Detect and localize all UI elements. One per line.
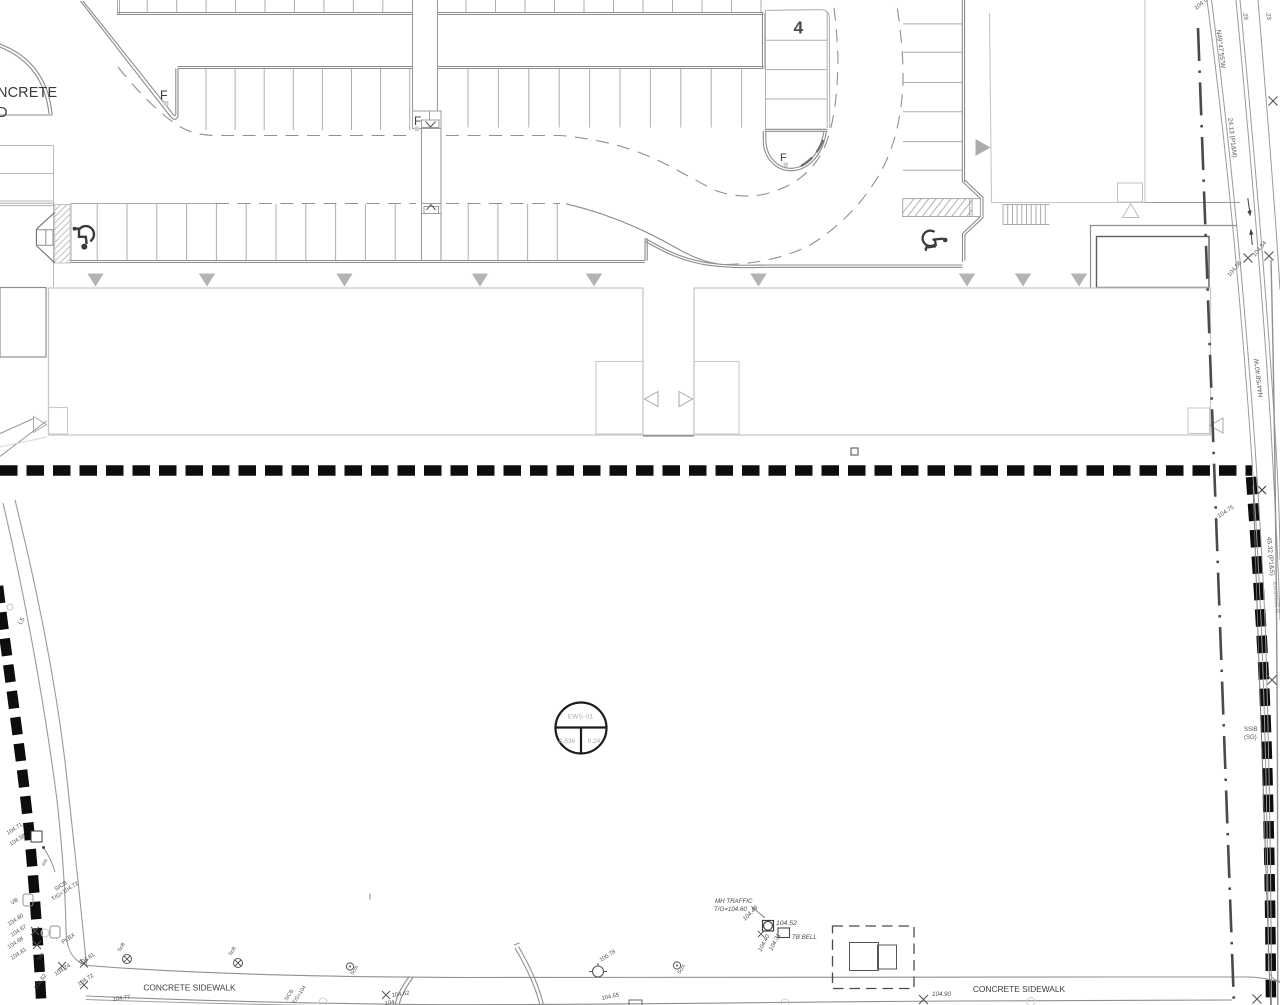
svg-text:NCRETE: NCRETE <box>0 85 57 101</box>
svg-text:L5: L5 <box>17 616 27 626</box>
svg-text:F: F <box>780 152 787 164</box>
svg-text:F: F <box>160 89 168 103</box>
svg-text:T/G=104: T/G=104 <box>292 985 308 1005</box>
svg-text:SM: SM <box>37 952 46 962</box>
svg-text:CONCRETE SIDEWALK: CONCRETE SIDEWALK <box>143 983 236 993</box>
svg-text:104.58: 104.58 <box>9 833 27 848</box>
svg-text:104.67: 104.67 <box>10 924 28 939</box>
svg-text:cm: cm <box>41 858 50 867</box>
svg-text:0.536: 0.536 <box>559 738 575 745</box>
svg-text:F: F <box>414 114 421 128</box>
svg-text:105.78: 105.78 <box>599 949 617 964</box>
svg-text:104.77: 104.77 <box>112 995 130 1003</box>
svg-text:104.90: 104.90 <box>932 991 951 998</box>
svg-text:45.32 (P1&S): 45.32 (P1&S) <box>1265 537 1275 576</box>
svg-text:104.75: 104.75 <box>1217 504 1236 519</box>
svg-text:N49°47’55”W: N49°47’55”W <box>1215 29 1228 69</box>
svg-text:104.52: 104.52 <box>776 920 797 927</box>
svg-text:104.81: 104.81 <box>10 947 28 962</box>
svg-text:5cm: 5cm <box>677 964 687 975</box>
svg-text:ScB: ScB <box>117 941 128 953</box>
svg-text:(SG): (SG) <box>1244 735 1257 741</box>
svg-text:EWS-01: EWS-01 <box>568 714 594 721</box>
svg-text:5cm: 5cm <box>350 965 360 976</box>
svg-text:CONCRETE SIDEWALK: CONCRETE SIDEWALK <box>973 984 1066 994</box>
svg-text:104.54: 104.54 <box>1194 0 1213 12</box>
svg-text:104.62: 104.62 <box>391 991 409 999</box>
svg-text:TB BELL: TB BELL <box>792 934 817 941</box>
svg-text:VB: VB <box>10 897 20 906</box>
svg-text:.23: .23 <box>1264 11 1271 21</box>
svg-text:104.: 104. <box>384 999 396 1005</box>
svg-text:4: 4 <box>794 18 804 38</box>
svg-text:ScB: ScB <box>228 945 239 957</box>
svg-text:D: D <box>0 105 7 121</box>
svg-text:N44°58’40”W: N44°58’40”W <box>1252 357 1265 397</box>
svg-text:PLBX: PLBX <box>61 932 77 945</box>
svg-text:MH TRAFFIC: MH TRAFFIC <box>715 898 753 905</box>
svg-text:104.65: 104.65 <box>601 992 620 1002</box>
svg-text:T/G=104.60: T/G=104.60 <box>714 906 747 913</box>
svg-text:0.24: 0.24 <box>588 738 601 745</box>
svg-text:SSIB: SSIB <box>1244 727 1258 733</box>
svg-text:104.54: 104.54 <box>1252 240 1269 258</box>
svg-text:104.72: 104.72 <box>77 973 95 988</box>
svg-text:104.31: 104.31 <box>768 933 782 952</box>
